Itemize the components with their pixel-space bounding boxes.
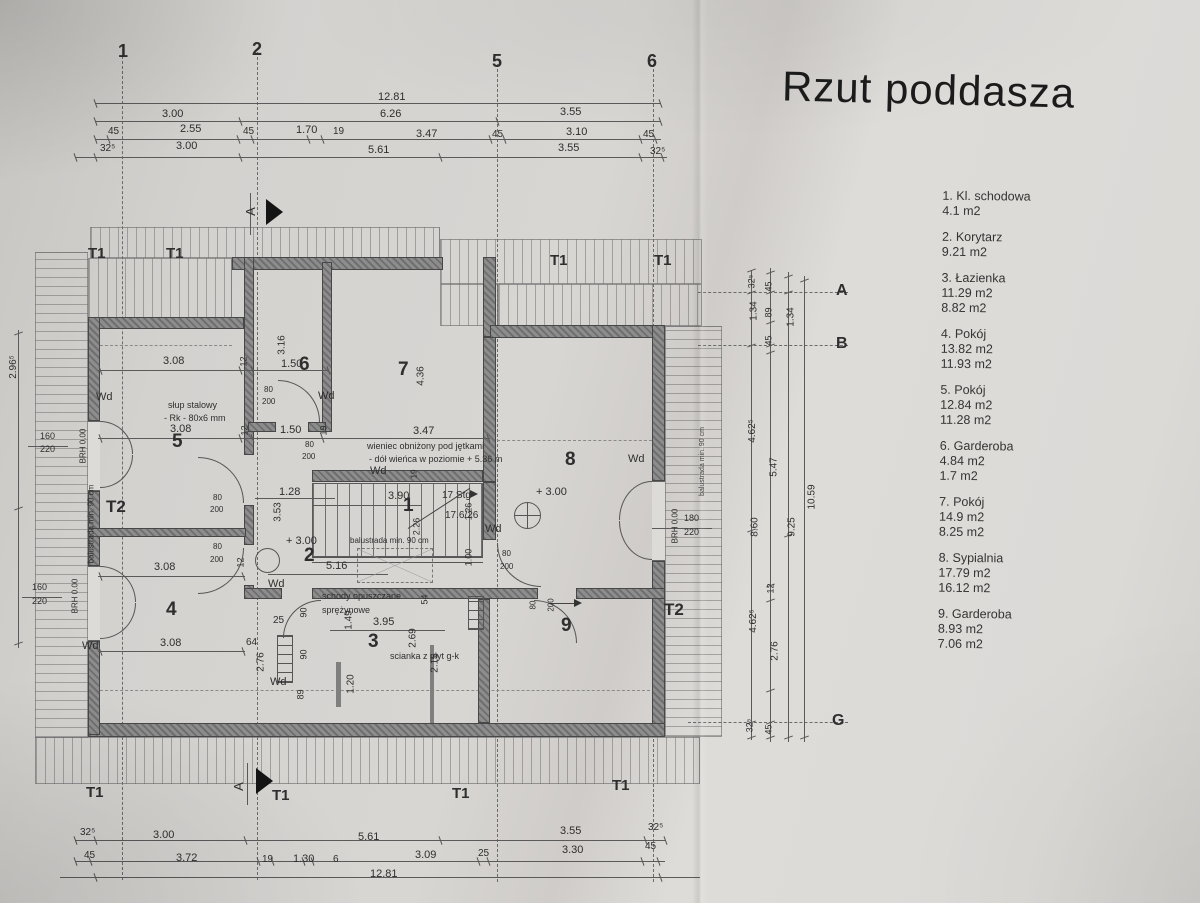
plan-label: 3.72 — [176, 853, 197, 864]
plan-label: BRH 0.00 — [671, 509, 679, 544]
plan-label: 3.08 — [154, 562, 175, 573]
plan-label: 32⁵ — [100, 144, 115, 154]
legend-item: 6. Garderoba4.84 m21.7 m2 — [939, 439, 1189, 487]
legend-item: 7. Pokój14.9 m28.25 m2 — [939, 495, 1189, 543]
plan-label: 3.30 — [562, 845, 583, 856]
grid-axis-line — [257, 52, 258, 880]
plan-label: 2.15 — [431, 653, 441, 672]
plan-label: Wd — [268, 579, 285, 590]
section-cut-line — [247, 763, 248, 805]
dimension-line — [788, 272, 789, 742]
dimension-line — [98, 370, 328, 371]
room-legend: 1. Kl. schodowa4.1 m22. Korytarz9.21 m23… — [938, 189, 1193, 666]
plan-label: 160 — [32, 583, 47, 592]
dimension-line — [751, 270, 752, 740]
plan-label: 3.08 — [163, 356, 184, 367]
section-marker-triangle — [266, 199, 283, 225]
plan-label: 1.00 — [464, 549, 473, 567]
plan-label: 17 Stg — [442, 491, 471, 501]
plan-label: 1.49 — [345, 610, 355, 629]
plan-label: 3.00 — [162, 109, 183, 120]
plan-label: T2 — [106, 498, 126, 515]
plan-label: 32⁵ — [80, 828, 95, 838]
plan-label: 80 — [305, 441, 314, 449]
plan-label: 45 — [108, 127, 119, 137]
plan-label: 8.60 — [751, 517, 761, 536]
plan-label: T1 — [86, 785, 104, 800]
door-swing-arc — [619, 481, 652, 520]
plan-label: T1 — [452, 786, 470, 801]
plan-label: 1.50 — [280, 425, 301, 436]
plan-label: 3.47 — [416, 129, 437, 140]
dimension-line — [255, 498, 335, 499]
plan-label: 32⁵ — [648, 823, 663, 833]
plan-label: Wd — [270, 677, 287, 688]
roof-overhang-hatch — [498, 284, 702, 326]
dimension-line — [95, 121, 661, 122]
plan-label: 2.96⁵ — [9, 355, 19, 379]
grid-axis-line — [698, 292, 848, 293]
roof-overhang-hatch — [35, 252, 88, 738]
dimension-line — [75, 157, 667, 158]
plan-label: 6.26 — [380, 109, 401, 120]
legend-item: 5. Pokój12.84 m211.28 m2 — [940, 383, 1190, 431]
plan-label: 10.59 — [808, 484, 818, 509]
roof-edge-dashed-line — [95, 690, 660, 691]
door-opening — [88, 566, 100, 641]
legend-room-area: 11.28 m2 — [940, 413, 1190, 431]
plan-label: 2.26 — [412, 518, 421, 536]
plan-label: 1.20 — [347, 674, 357, 693]
plan-label: 7 — [398, 360, 409, 379]
plan-label: T1 — [88, 246, 106, 261]
door-swing-arc — [100, 566, 136, 602]
plan-label: 200 — [548, 598, 556, 611]
plan-label: 8 — [565, 450, 576, 469]
plan-label: 3.95 — [373, 617, 394, 628]
vent-symbol — [255, 548, 280, 573]
plan-label: 80 — [213, 494, 222, 502]
legend-room-area: 8.25 m2 — [939, 525, 1189, 543]
plan-label: 12.81 — [370, 869, 398, 880]
door-swing-arc — [100, 455, 133, 488]
plan-label: Wd — [96, 392, 113, 403]
plan-label: 12 — [767, 583, 776, 593]
door-swing-arc — [283, 600, 321, 638]
plan-label: - dół wieńca w poziomie + 5.36 m — [369, 455, 502, 464]
plan-label: 5.47 — [770, 457, 780, 476]
door-swing-arc — [619, 521, 652, 560]
plan-label: T2 — [664, 601, 684, 618]
plan-label: 19 — [262, 855, 273, 865]
plan-label: 220 — [32, 597, 47, 606]
plan-label: 80 — [529, 601, 537, 610]
plan-label: balustrada min. 90 cm — [87, 485, 95, 564]
plan-label: 3.00 — [153, 830, 174, 841]
plan-label: 200 — [302, 453, 315, 461]
plan-label: 1.34 — [787, 307, 797, 326]
plan-label: 45 — [765, 724, 774, 734]
door-swing-arc — [278, 380, 320, 422]
dimension-line — [804, 276, 805, 742]
legend-room-area: 8.82 m2 — [941, 301, 1191, 319]
plan-label: 3.09 — [415, 850, 436, 861]
plan-label: 64 — [246, 638, 257, 648]
legend-item: 2. Korytarz9.21 m2 — [942, 230, 1192, 263]
plan-label: - Rk - 80x6 mm — [164, 414, 226, 423]
arrow-head — [470, 490, 478, 498]
drawing-title: Rzut poddasza — [781, 62, 1075, 117]
dimension-line — [75, 861, 665, 862]
dimension-tick — [658, 99, 662, 108]
plan-label: 90 — [300, 649, 309, 659]
arrow-head — [574, 599, 582, 607]
plan-label: 12 — [237, 557, 246, 567]
wall-segment — [652, 325, 665, 481]
legend-room-area: 16.12 m2 — [938, 581, 1188, 599]
plan-label: 32⁵ — [747, 275, 756, 289]
plan-label: 6 — [647, 52, 657, 70]
plan-label: 1 — [118, 42, 128, 60]
plan-label: 25 — [478, 849, 489, 859]
plan-label: 200 — [500, 563, 513, 571]
plan-label: 2.76 — [771, 641, 781, 660]
plan-label: 4.62⁵ — [749, 609, 759, 633]
plan-label: 80 — [213, 543, 222, 551]
section-marker-triangle — [256, 768, 273, 794]
plan-label: 6 — [299, 355, 310, 374]
plan-label: T1 — [550, 253, 568, 268]
plan-label: 3 — [368, 632, 379, 651]
grid-axis-line — [497, 64, 498, 882]
dimension-tick — [663, 836, 667, 845]
plan-label: G — [832, 713, 844, 729]
legend-room-area: 1.7 m2 — [939, 469, 1189, 487]
legend-item: 8. Sypialnia17.79 m216.12 m2 — [938, 551, 1188, 599]
plan-label: 2.55 — [180, 124, 201, 135]
plan-label: 45 — [643, 130, 654, 140]
plan-label: 12 — [241, 425, 250, 435]
plan-label: 220 — [684, 528, 699, 537]
plan-label: 1.30 — [293, 854, 314, 865]
plan-label: 2 — [252, 40, 262, 58]
plan-label: 19 — [333, 127, 344, 137]
plan-label: + 3.00 — [536, 487, 567, 498]
plan-label: 89 — [297, 689, 306, 699]
plan-label: 54 — [421, 594, 430, 604]
plan-label: 4.36 — [417, 366, 427, 385]
plan-label: Wd — [370, 466, 387, 477]
plan-label: 45 — [645, 842, 656, 852]
plan-label: 45 — [243, 127, 254, 137]
floor-plan-photo: 1256ABG12.813.006.263.55452.55451.70193.… — [0, 0, 1200, 903]
plan-label: 3.55 — [560, 826, 581, 837]
wall-segment — [88, 723, 665, 737]
plan-label: Wd — [318, 391, 335, 402]
plan-label: 3.16 — [278, 335, 288, 354]
roof-overhang-hatch — [90, 227, 440, 258]
roof-overhang-hatch — [35, 737, 700, 784]
plan-label: 3.55 — [560, 107, 581, 118]
plan-label: 3.47 — [413, 426, 434, 437]
dimension-line — [95, 103, 661, 104]
plan-label: Wd — [82, 641, 99, 652]
plan-label: T1 — [612, 778, 630, 793]
plan-label: 2 — [304, 546, 315, 565]
plan-label: 9 — [561, 616, 572, 635]
plan-label: 5 — [492, 52, 502, 70]
door-swing-arc — [100, 421, 133, 454]
legend-item: 9. Garderoba8.93 m27.06 m2 — [938, 607, 1188, 655]
legend-item: 1. Kl. schodowa4.1 m2 — [942, 189, 1192, 222]
plan-label: 3.55 — [558, 143, 579, 154]
radiator-symbol — [468, 596, 484, 630]
plan-label: 3.00 — [176, 141, 197, 152]
plan-label: 3.53 — [274, 502, 284, 521]
plan-label: Wd — [485, 524, 502, 535]
plan-label: 19 — [410, 470, 418, 479]
plan-label: 32⁵ — [745, 719, 754, 733]
legend-room-area: 4.1 m2 — [942, 204, 1192, 222]
plan-label: 5.61 — [368, 145, 389, 156]
plan-label: słup stalowy — [168, 401, 217, 410]
dimension-tick — [658, 117, 662, 126]
dimension-line — [98, 438, 490, 439]
plan-label: 12 — [240, 356, 249, 366]
legend-item: 3. Łazienka11.29 m28.82 m2 — [941, 271, 1191, 319]
wall-segment — [490, 325, 665, 338]
plan-label: T1 — [166, 246, 184, 261]
plan-label: 45 — [84, 851, 95, 861]
plan-label: 200 — [210, 506, 223, 514]
plan-label: 19 — [320, 425, 329, 435]
plan-label: wieniec obniżony pod jętkami — [367, 442, 484, 451]
dimension-line — [652, 528, 712, 529]
plan-label: T1 — [654, 253, 672, 268]
plan-label: 25 — [273, 616, 284, 626]
plan-label: 6 — [333, 855, 339, 865]
plan-label: 1.70 — [296, 125, 317, 136]
plan-label: 2.69 — [409, 628, 419, 647]
wall-segment — [88, 317, 244, 329]
plan-label: 80 — [502, 550, 511, 558]
plan-label: 3.08 — [160, 638, 181, 649]
door-opening — [88, 421, 100, 491]
plan-label: balustrada min. 90 cm — [699, 427, 706, 496]
plan-label: 1.26 — [464, 503, 473, 521]
plan-label: balustrada min. 90 cm — [350, 537, 429, 545]
wall-segment — [88, 641, 100, 735]
plan-label: 32⁵ — [650, 147, 665, 157]
plan-label: 45 — [492, 130, 503, 140]
roof-edge-dashed-line — [497, 440, 652, 441]
plan-label: BRH 0.00 — [71, 579, 79, 614]
roof-overhang-hatch — [88, 258, 232, 318]
plan-label: 5.16 — [326, 561, 347, 572]
plan-label: 3.10 — [566, 127, 587, 138]
plan-label: 160 — [40, 432, 55, 441]
plan-label: 5.61 — [358, 832, 379, 843]
plan-label: 200 — [210, 556, 223, 564]
legend-room-area: 11.93 m2 — [941, 357, 1191, 375]
dimension-line — [330, 630, 445, 631]
plan-label: 4 — [166, 600, 177, 619]
plan-label: B — [836, 336, 848, 352]
plan-label: 180 — [684, 514, 699, 523]
chimney-symbol — [514, 502, 541, 529]
plan-label: 45 — [765, 281, 774, 291]
wall-segment — [232, 257, 443, 270]
plan-label: 2.76 — [257, 652, 267, 671]
plan-label: 1.28 — [279, 487, 300, 498]
legend-item: 4. Pokój13.82 m211.93 m2 — [941, 327, 1191, 375]
plan-label: Wd — [628, 454, 645, 465]
wall-segment — [576, 588, 665, 599]
roof-edge-dashed-line — [100, 345, 232, 346]
wall-segment — [244, 505, 254, 545]
plan-label: BRH 0.00 — [79, 429, 87, 464]
legend-room-area: 9.21 m2 — [942, 245, 1192, 263]
legend-room-area: 7.06 m2 — [938, 637, 1188, 655]
plan-label: T1 — [272, 788, 290, 803]
plan-label: A — [232, 782, 245, 791]
plan-label: A — [836, 283, 848, 299]
wall-segment — [312, 470, 483, 482]
plan-label: 220 — [40, 445, 55, 454]
attic-ladder-hatch — [357, 548, 433, 583]
plan-label: 89 — [765, 307, 774, 317]
plan-label: 9.25 — [788, 517, 798, 536]
plan-label: 200 — [262, 398, 275, 406]
plan-label: 90 — [300, 607, 309, 617]
plan-label: 17.6/26 — [445, 511, 478, 521]
plan-label: 45 — [765, 335, 774, 345]
door-opening — [652, 481, 665, 561]
plan-label: 3.08 — [170, 424, 191, 435]
plan-label: A — [244, 207, 257, 216]
plan-label: 80 — [264, 386, 273, 394]
dimension-line — [98, 651, 245, 652]
wall-segment — [248, 422, 276, 432]
plan-label: schody opuszczane — [322, 592, 401, 601]
wall-segment — [322, 262, 332, 432]
partition-wall — [336, 662, 341, 707]
plan-label: 1.34 — [750, 301, 760, 320]
plan-label: scianka z płyt g-k — [390, 652, 459, 661]
plan-label: 1 — [403, 496, 414, 515]
plan-label: 4.62⁵ — [748, 419, 758, 443]
wall-segment — [88, 317, 100, 421]
plan-label: 12.81 — [378, 92, 406, 103]
door-swing-arc — [100, 603, 136, 639]
wall-segment — [88, 528, 246, 537]
